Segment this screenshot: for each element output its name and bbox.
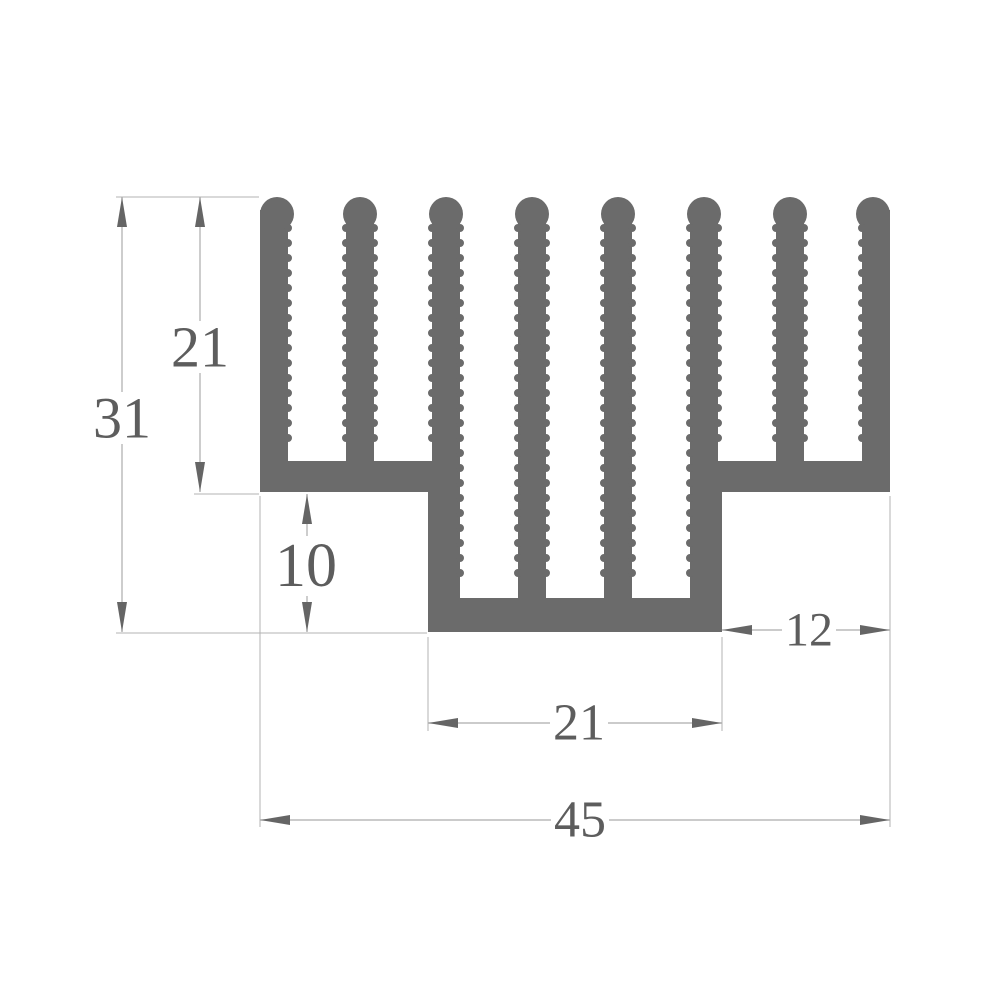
fin-2-body	[346, 210, 374, 492]
extension-lines	[116, 197, 890, 827]
dim-total-height: 31	[93, 197, 151, 632]
dim-label-right-wing-width: 12	[785, 604, 833, 657]
fin-serrations	[288, 228, 862, 585]
arrow-up-icon	[195, 197, 205, 227]
dim-step-height: 10	[275, 494, 337, 632]
technical-drawing: 31 21 10 12 21	[0, 0, 1000, 1000]
fin-8-body	[862, 210, 890, 492]
arrow-left-icon	[428, 718, 458, 728]
dim-right-wing-width: 12	[722, 604, 890, 657]
arrow-up-icon	[117, 197, 127, 227]
arrow-down-icon	[302, 602, 312, 632]
arrow-right-icon	[860, 625, 890, 635]
fin-5-body	[604, 210, 632, 598]
arrow-right-icon	[692, 718, 722, 728]
arrow-right-icon	[860, 815, 890, 825]
base-slab	[428, 598, 722, 632]
dimensions: 31 21 10 12 21	[93, 197, 890, 849]
arrow-up-icon	[302, 494, 312, 524]
heatsink-profile	[260, 197, 890, 632]
dim-label-step-height: 10	[275, 532, 337, 600]
dim-wing-height: 21	[171, 197, 229, 492]
dim-total-width: 45	[260, 792, 890, 849]
fin-7-body	[776, 210, 804, 492]
dim-label-total-width: 45	[554, 792, 606, 849]
arrow-left-icon	[722, 625, 752, 635]
arrow-down-icon	[195, 462, 205, 492]
fin-1-body	[260, 210, 288, 492]
dim-label-total-height: 31	[93, 386, 151, 451]
dim-center-width: 21	[428, 695, 722, 752]
dim-label-center-width: 21	[553, 695, 605, 752]
arrow-down-icon	[117, 602, 127, 632]
drawing-canvas: 31 21 10 12 21	[0, 0, 1000, 1000]
fin-4-body	[518, 210, 546, 598]
dim-label-wing-height: 21	[171, 315, 229, 380]
arrow-left-icon	[260, 815, 290, 825]
